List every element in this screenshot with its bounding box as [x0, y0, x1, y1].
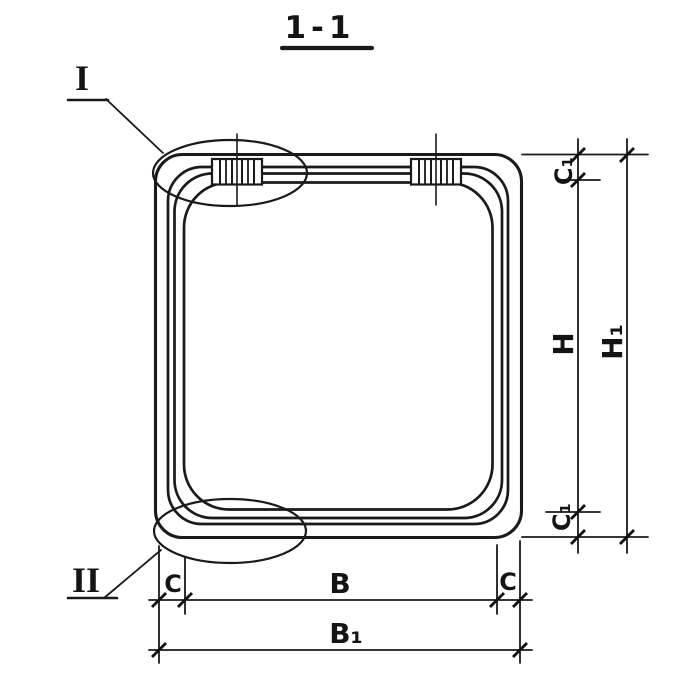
callout-bottom: II [68, 550, 161, 600]
view-title-text: 1-1 [284, 10, 355, 46]
callout-top: I [68, 58, 163, 153]
dimensions-right: C₁ H C₁ H₁ [522, 139, 648, 553]
dim-label-c-left: C [164, 570, 182, 598]
dim-label-h1: H₁ [596, 324, 629, 360]
dim-label-c-right: C [499, 568, 517, 596]
section-liner-line-1 [168, 167, 508, 524]
dimensions-bottom: C B C B₁ [149, 541, 532, 663]
dim-label-c1-bottom: C₁ [548, 503, 576, 531]
callout-bottom-leader [104, 550, 161, 598]
section-drawing: I II 1-1 C₁ H C₁ H₁ [0, 0, 700, 700]
callout-top-leader [106, 99, 163, 153]
embedded-plate-left [212, 134, 262, 205]
callout-bottom-label: II [72, 560, 100, 600]
drawing-sheet: I II 1-1 C₁ H C₁ H₁ [0, 0, 700, 700]
section-opening-edge [184, 183, 493, 510]
dim-label-h: H [547, 332, 580, 355]
embedded-plate-right [411, 134, 461, 205]
dim-label-b: B [329, 567, 350, 600]
dim-label-b1: B₁ [329, 617, 363, 650]
section-liner-line-2 [175, 174, 503, 519]
callout-top-label: I [75, 58, 89, 98]
view-title: 1-1 [282, 10, 372, 48]
dim-label-c1-top: C₁ [550, 157, 578, 185]
section-outer-edge [156, 155, 522, 538]
section-outline [156, 155, 522, 538]
